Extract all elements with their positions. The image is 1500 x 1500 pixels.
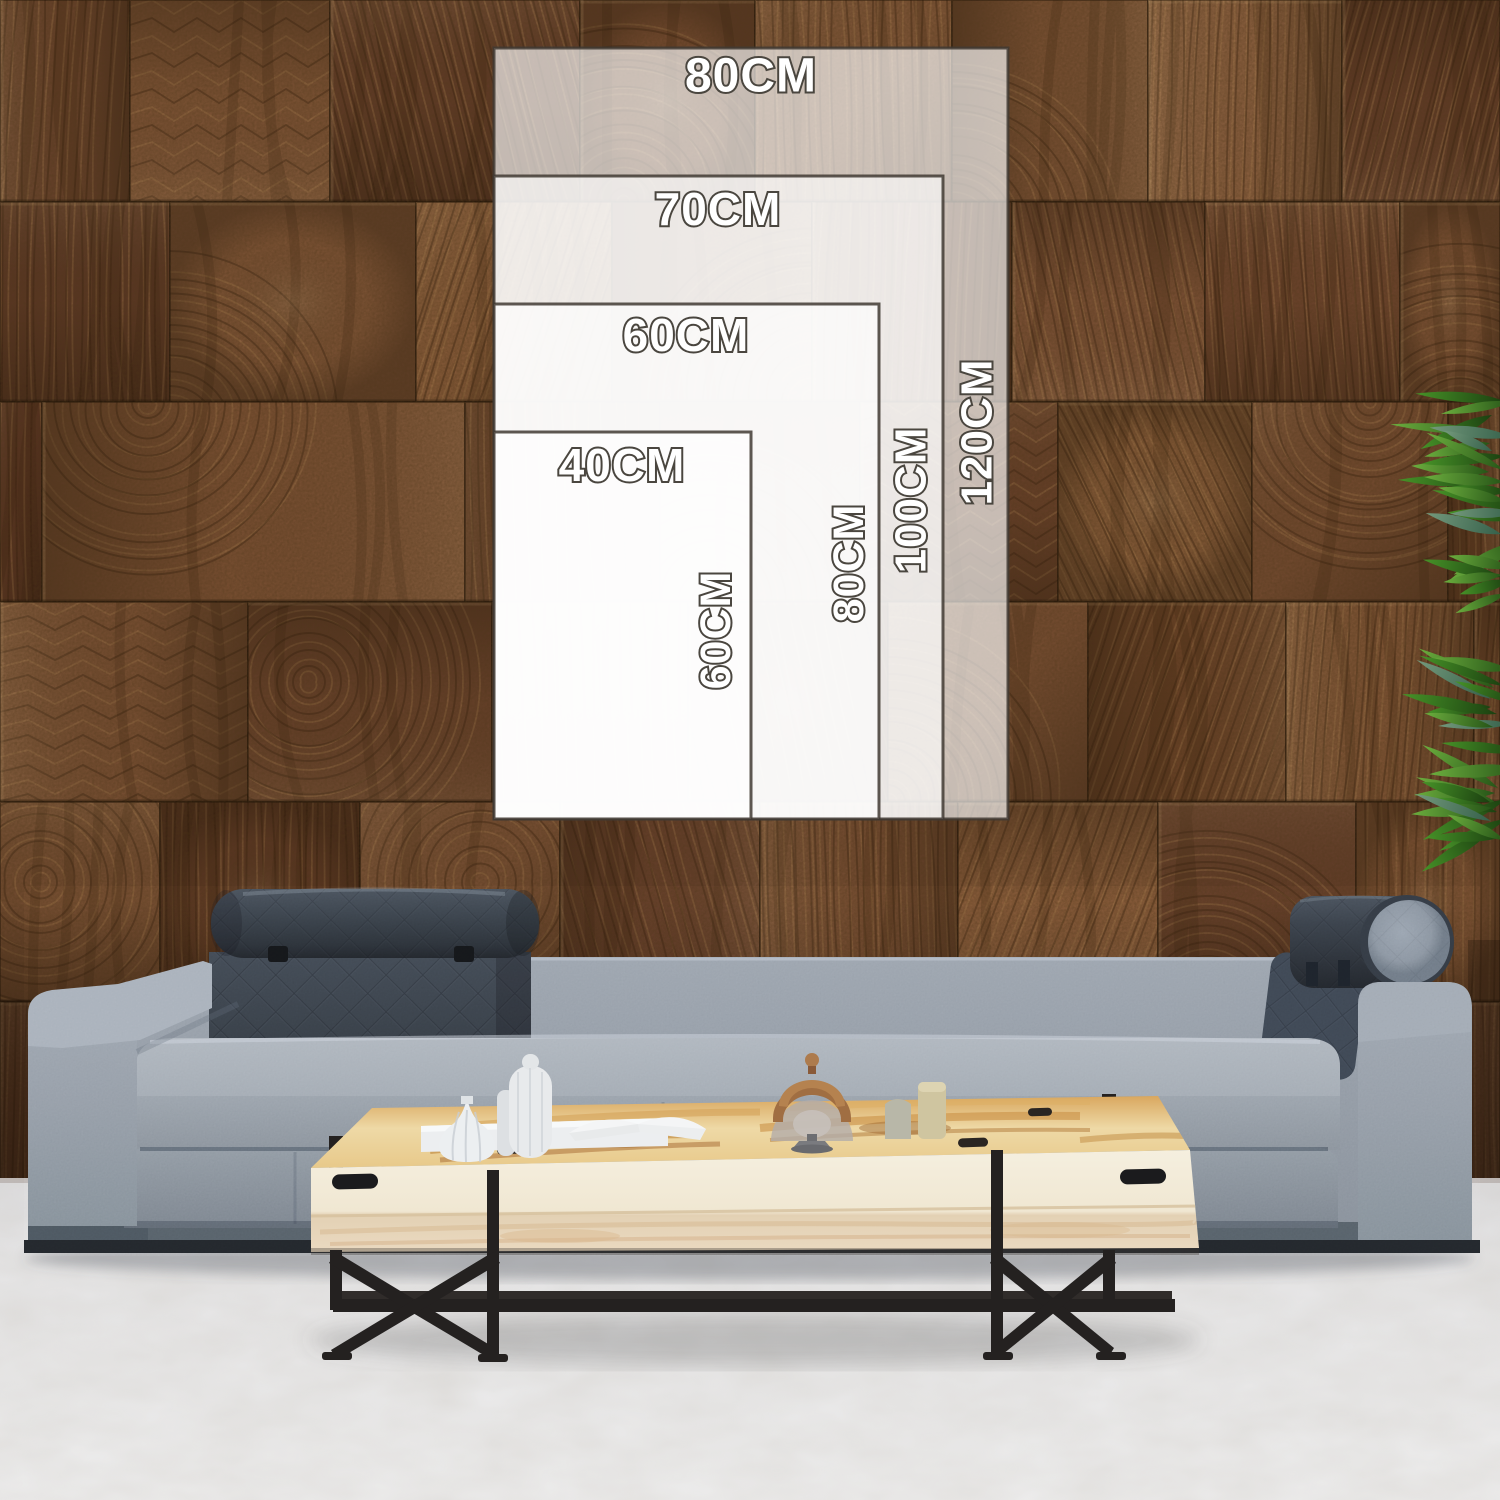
svg-text:80CM: 80CM [685, 50, 817, 103]
svg-text:60CM: 60CM [623, 309, 750, 361]
svg-text:60CM: 60CM [692, 571, 740, 690]
svg-text:120CM: 120CM [953, 359, 1002, 506]
svg-text:70CM: 70CM [655, 183, 782, 235]
svg-text:100CM: 100CM [887, 427, 936, 574]
svg-text:80CM: 80CM [825, 504, 873, 623]
svg-text:40CM: 40CM [559, 439, 686, 491]
